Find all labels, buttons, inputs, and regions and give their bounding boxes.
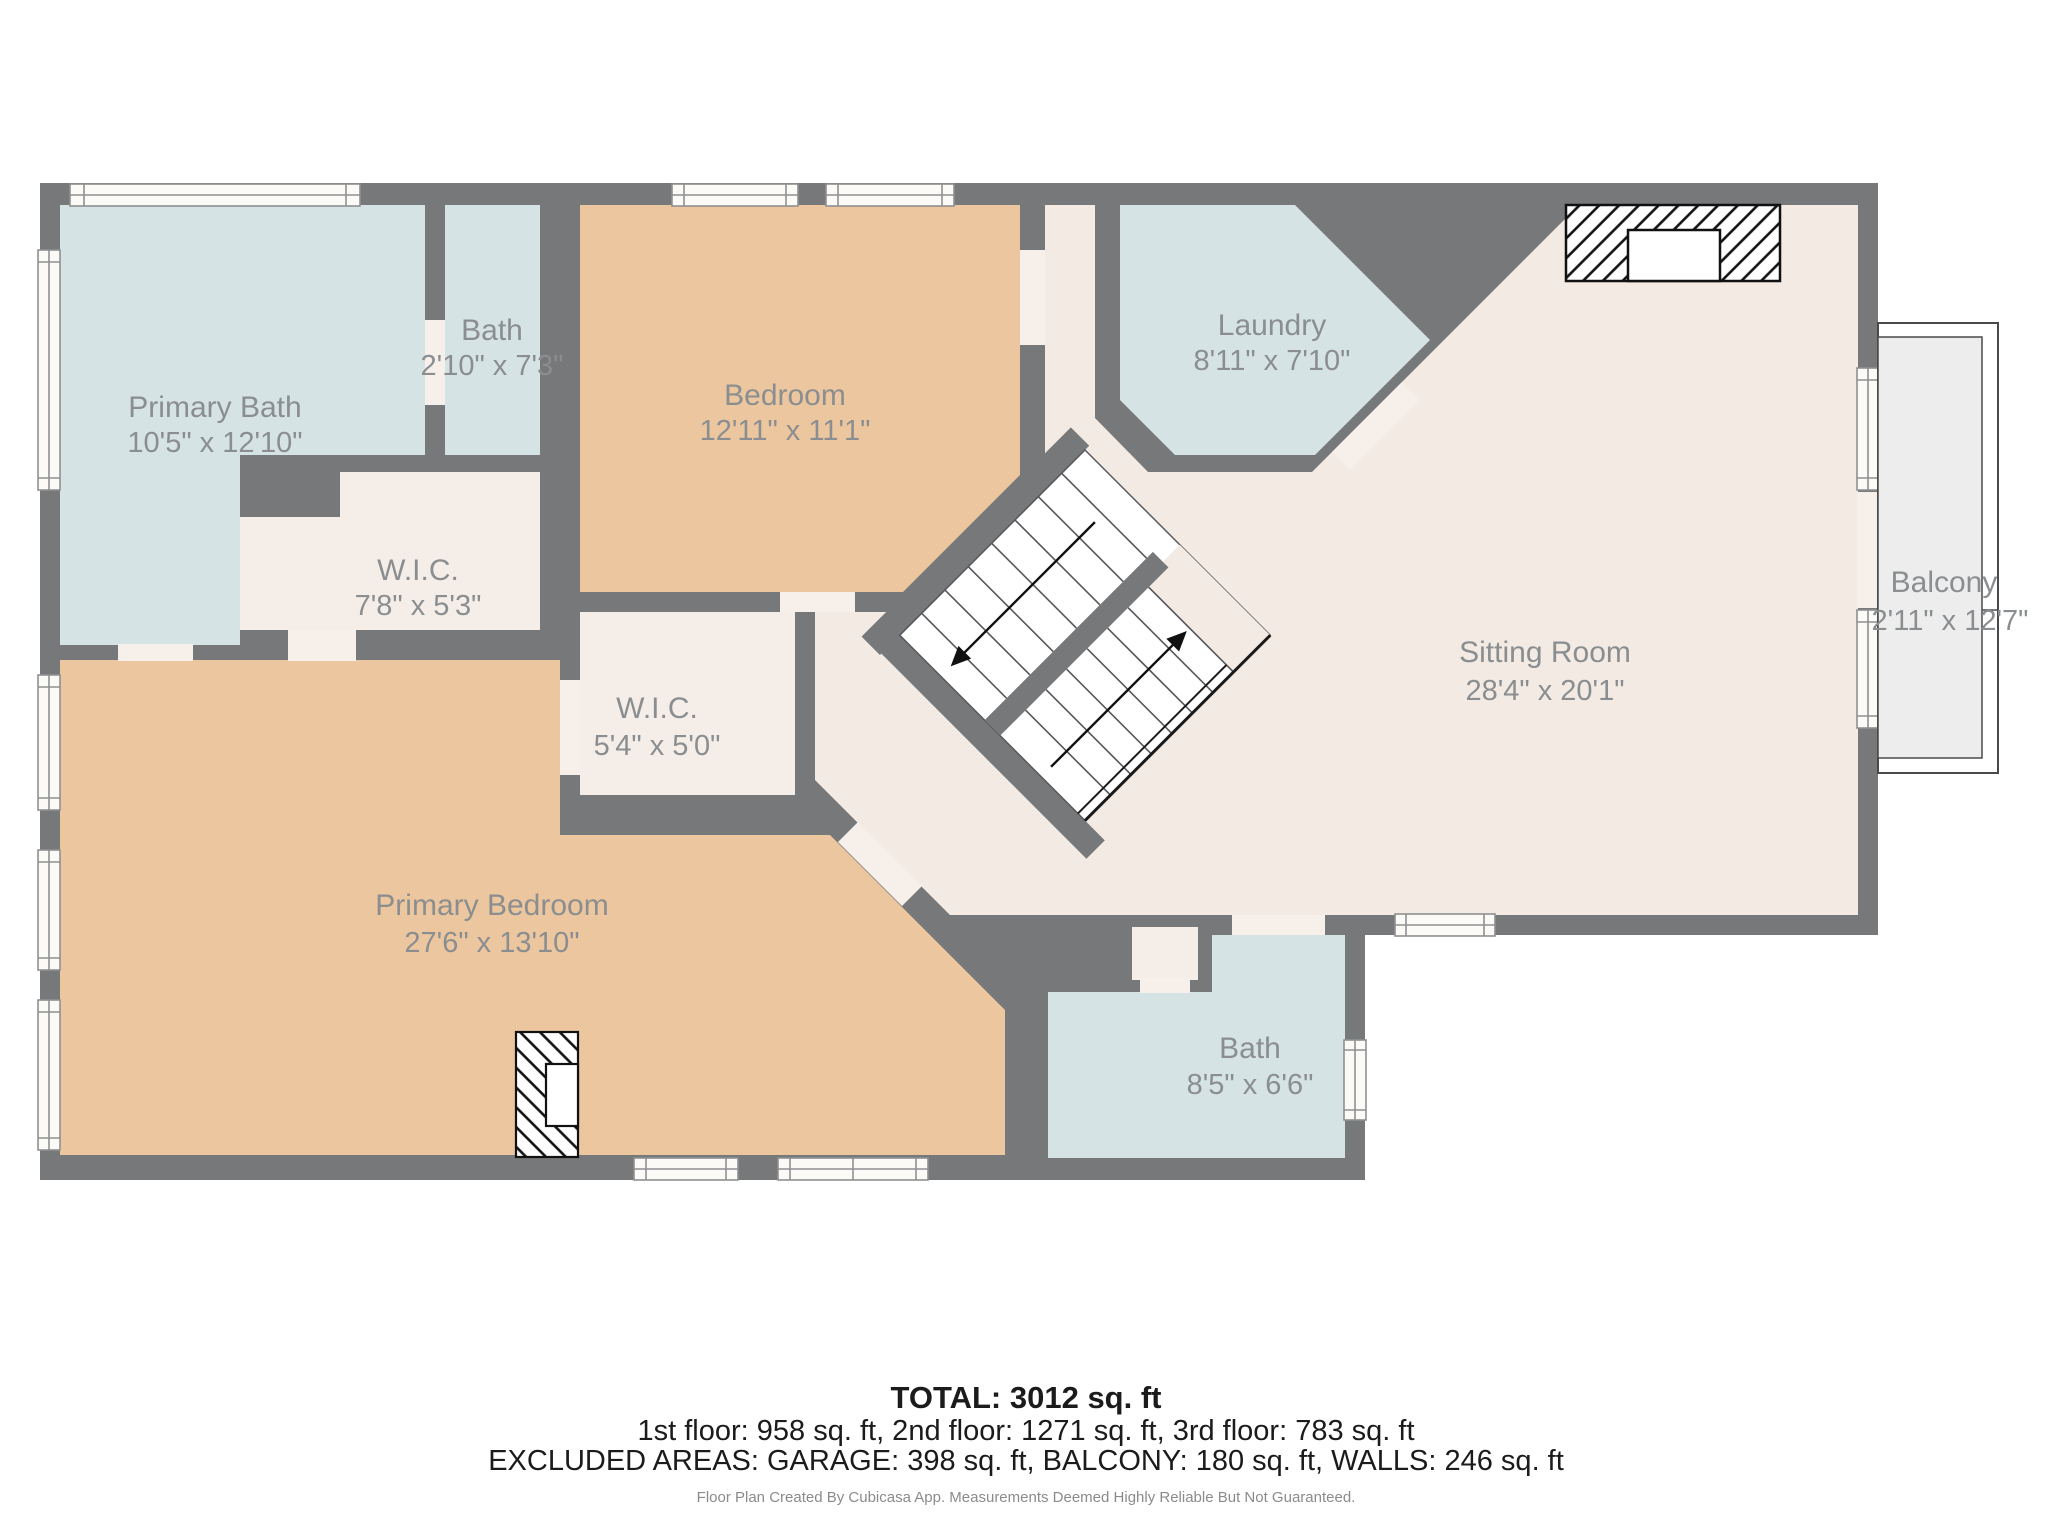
wic-large-dims: 7'8" x 5'3" [355,590,482,622]
window-glyph [38,675,60,810]
fireplace-sitting-room [1566,205,1780,281]
sitting-room-dims: 28'4" x 20'1" [1465,675,1624,707]
door-lower-bath [1232,915,1325,935]
laundry-dims: 8'11" x 7'10" [1194,345,1351,377]
window-glyph [70,184,360,206]
door-bedroom-hall [780,592,855,612]
footer-total: TOTAL: 3012 sq. ft [890,1380,1161,1415]
window-glyph [38,250,60,490]
fireplace-primary-bedroom [516,1032,578,1157]
door-balcony-slider [1857,492,1879,608]
lower-bath-dims: 8'5" x 6'6" [1187,1069,1314,1101]
door-bath-alcove [1140,978,1190,993]
window-glyph [672,184,798,206]
laundry-label: Laundry [1218,309,1326,342]
door-wic-large [288,630,356,661]
bedroom-label: Bedroom [724,379,846,412]
floor-plan-page: Primary Bath 10'5" x 12'10" Bath 2'10" x… [0,0,2048,1536]
wic-small-label: W.I.C. [616,692,698,725]
balcony [1878,323,1998,773]
balcony-label: Balcony [1891,566,1998,599]
door-wic-small [560,680,580,775]
balcony-deck [1878,337,1982,758]
window-glyph [1395,914,1495,936]
window-glyph [1857,368,1879,490]
footer-excluded: EXCLUDED AREAS: GARAGE: 398 sq. ft, BALC… [488,1445,1564,1477]
balcony-dims: 2'11" x 12'7" [1872,605,2029,637]
primary-bedroom-dims: 27'6" x 13'10" [404,927,579,959]
window-glyph [1344,1040,1366,1120]
primary-bath-dims: 10'5" x 12'10" [127,427,302,459]
primary-bath-label: Primary Bath [128,391,301,424]
primary-bedroom-label: Primary Bedroom [375,889,608,922]
sitting-room-label: Sitting Room [1459,636,1631,669]
bath-alcove-floor [1132,927,1198,980]
footer-disclaimer: Floor Plan Created By Cubicasa App. Meas… [697,1489,1356,1506]
window-glyph [38,1000,60,1150]
small-bath-dims: 2'10" x 7'3" [421,350,564,382]
small-bath-label: Bath [461,314,523,347]
wic-large-label: W.I.C. [377,554,459,587]
window-glyph [38,850,60,970]
door-primarybath-bedroom [118,644,193,661]
wic-small-dims: 5'4" x 5'0" [594,730,721,762]
door-bedroom-landing [1020,250,1045,345]
window-glyph [778,1158,928,1180]
footer-floors: 1st floor: 958 sq. ft, 2nd floor: 1271 s… [638,1415,1415,1447]
window-glyph [634,1158,738,1180]
floor-plan-canvas: Primary Bath 10'5" x 12'10" Bath 2'10" x… [0,0,2048,1536]
lower-bath-label: Bath [1219,1032,1281,1065]
window-glyph [826,184,954,206]
bedroom-dims: 12'11" x 11'1" [700,415,871,447]
